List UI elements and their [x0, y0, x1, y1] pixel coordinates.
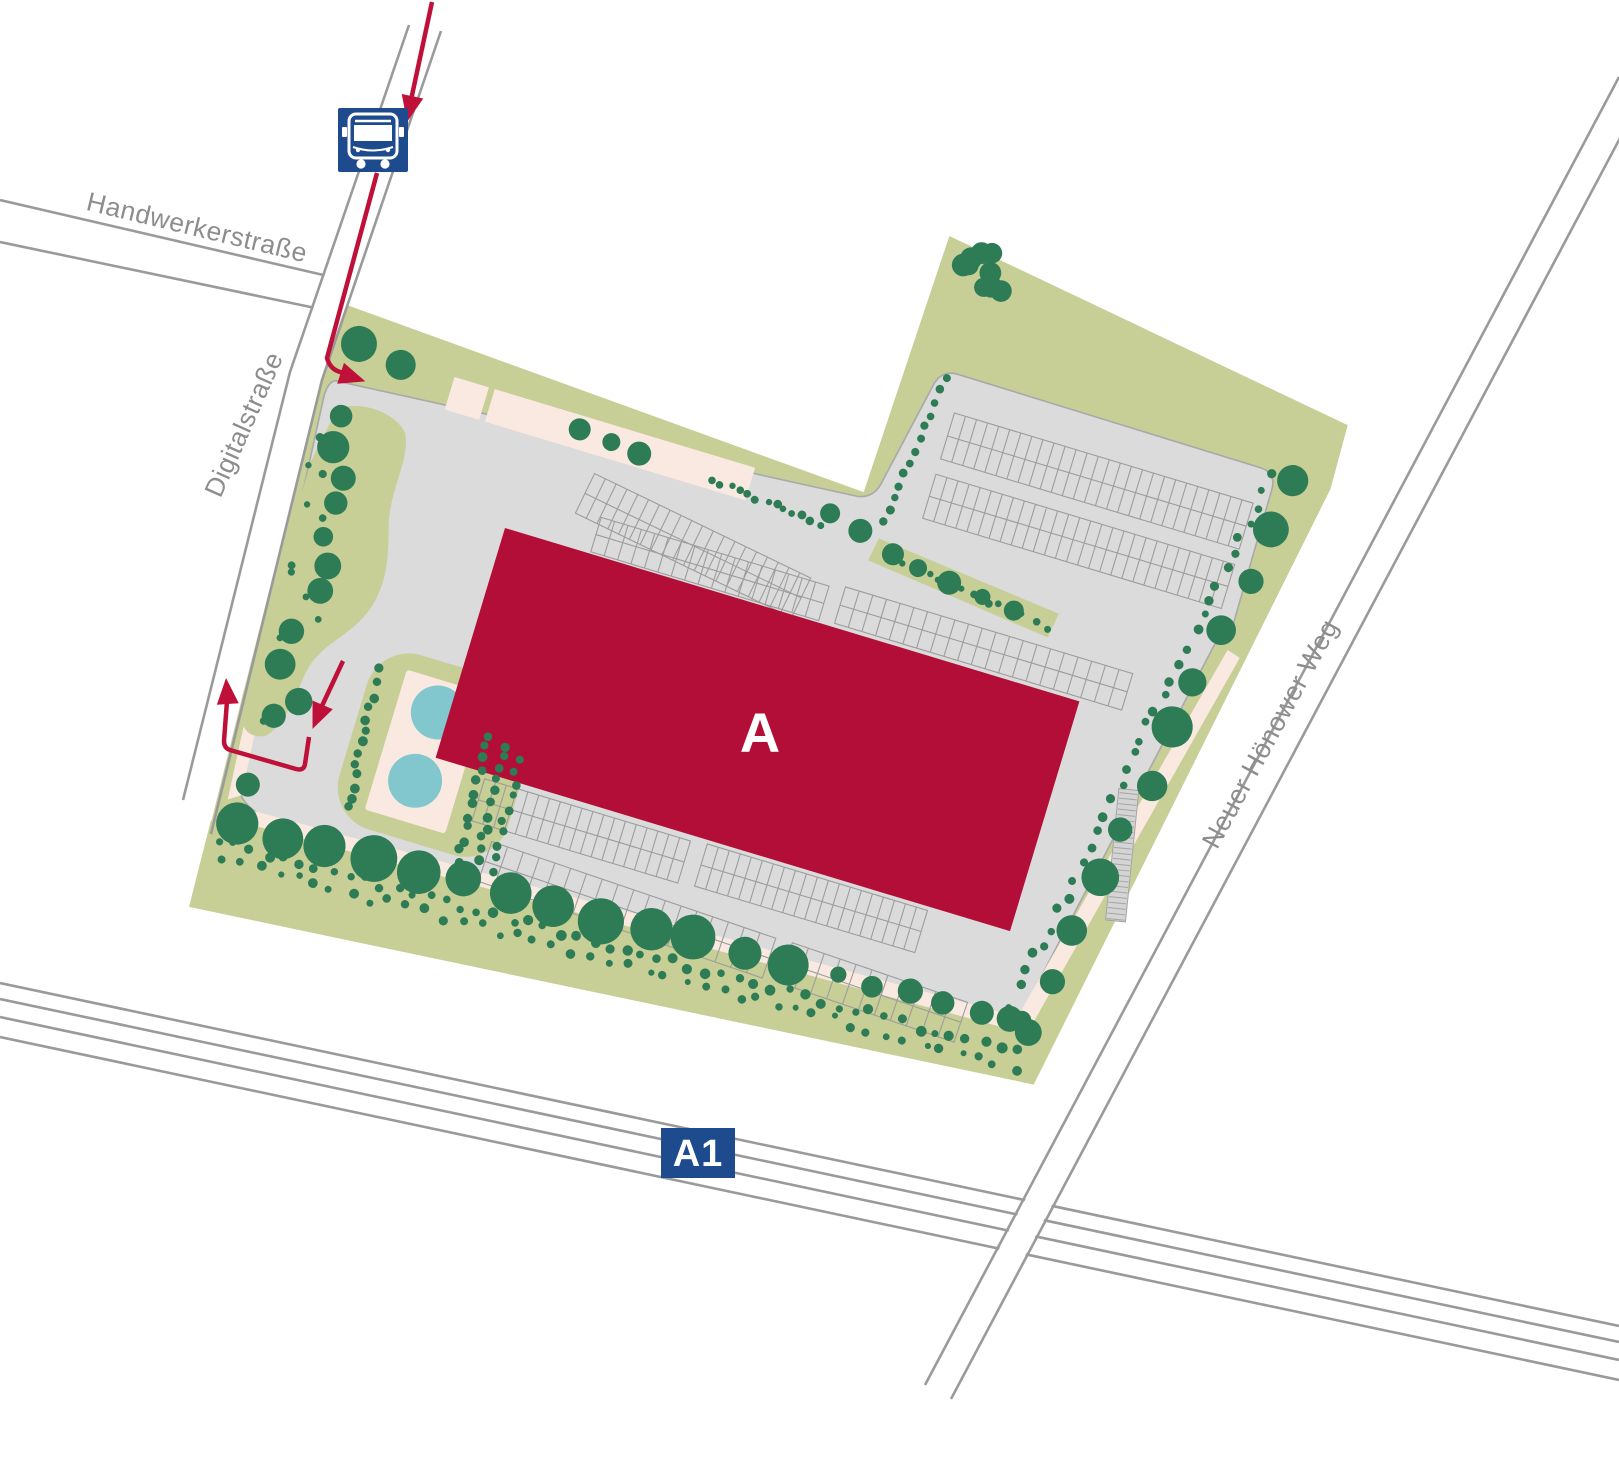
building-label: A — [740, 701, 780, 764]
map-canvas: Handwerkerstraße Digitalstraße Neuer Hön… — [0, 0, 1619, 1479]
road-a1 — [0, 983, 1619, 1380]
highway-badge: A1 — [661, 1128, 735, 1178]
highway-badge-label: A1 — [673, 1133, 724, 1175]
site-plan-map: Handwerkerstraße Digitalstraße Neuer Hön… — [0, 0, 1619, 1479]
bus-icon — [338, 108, 408, 172]
